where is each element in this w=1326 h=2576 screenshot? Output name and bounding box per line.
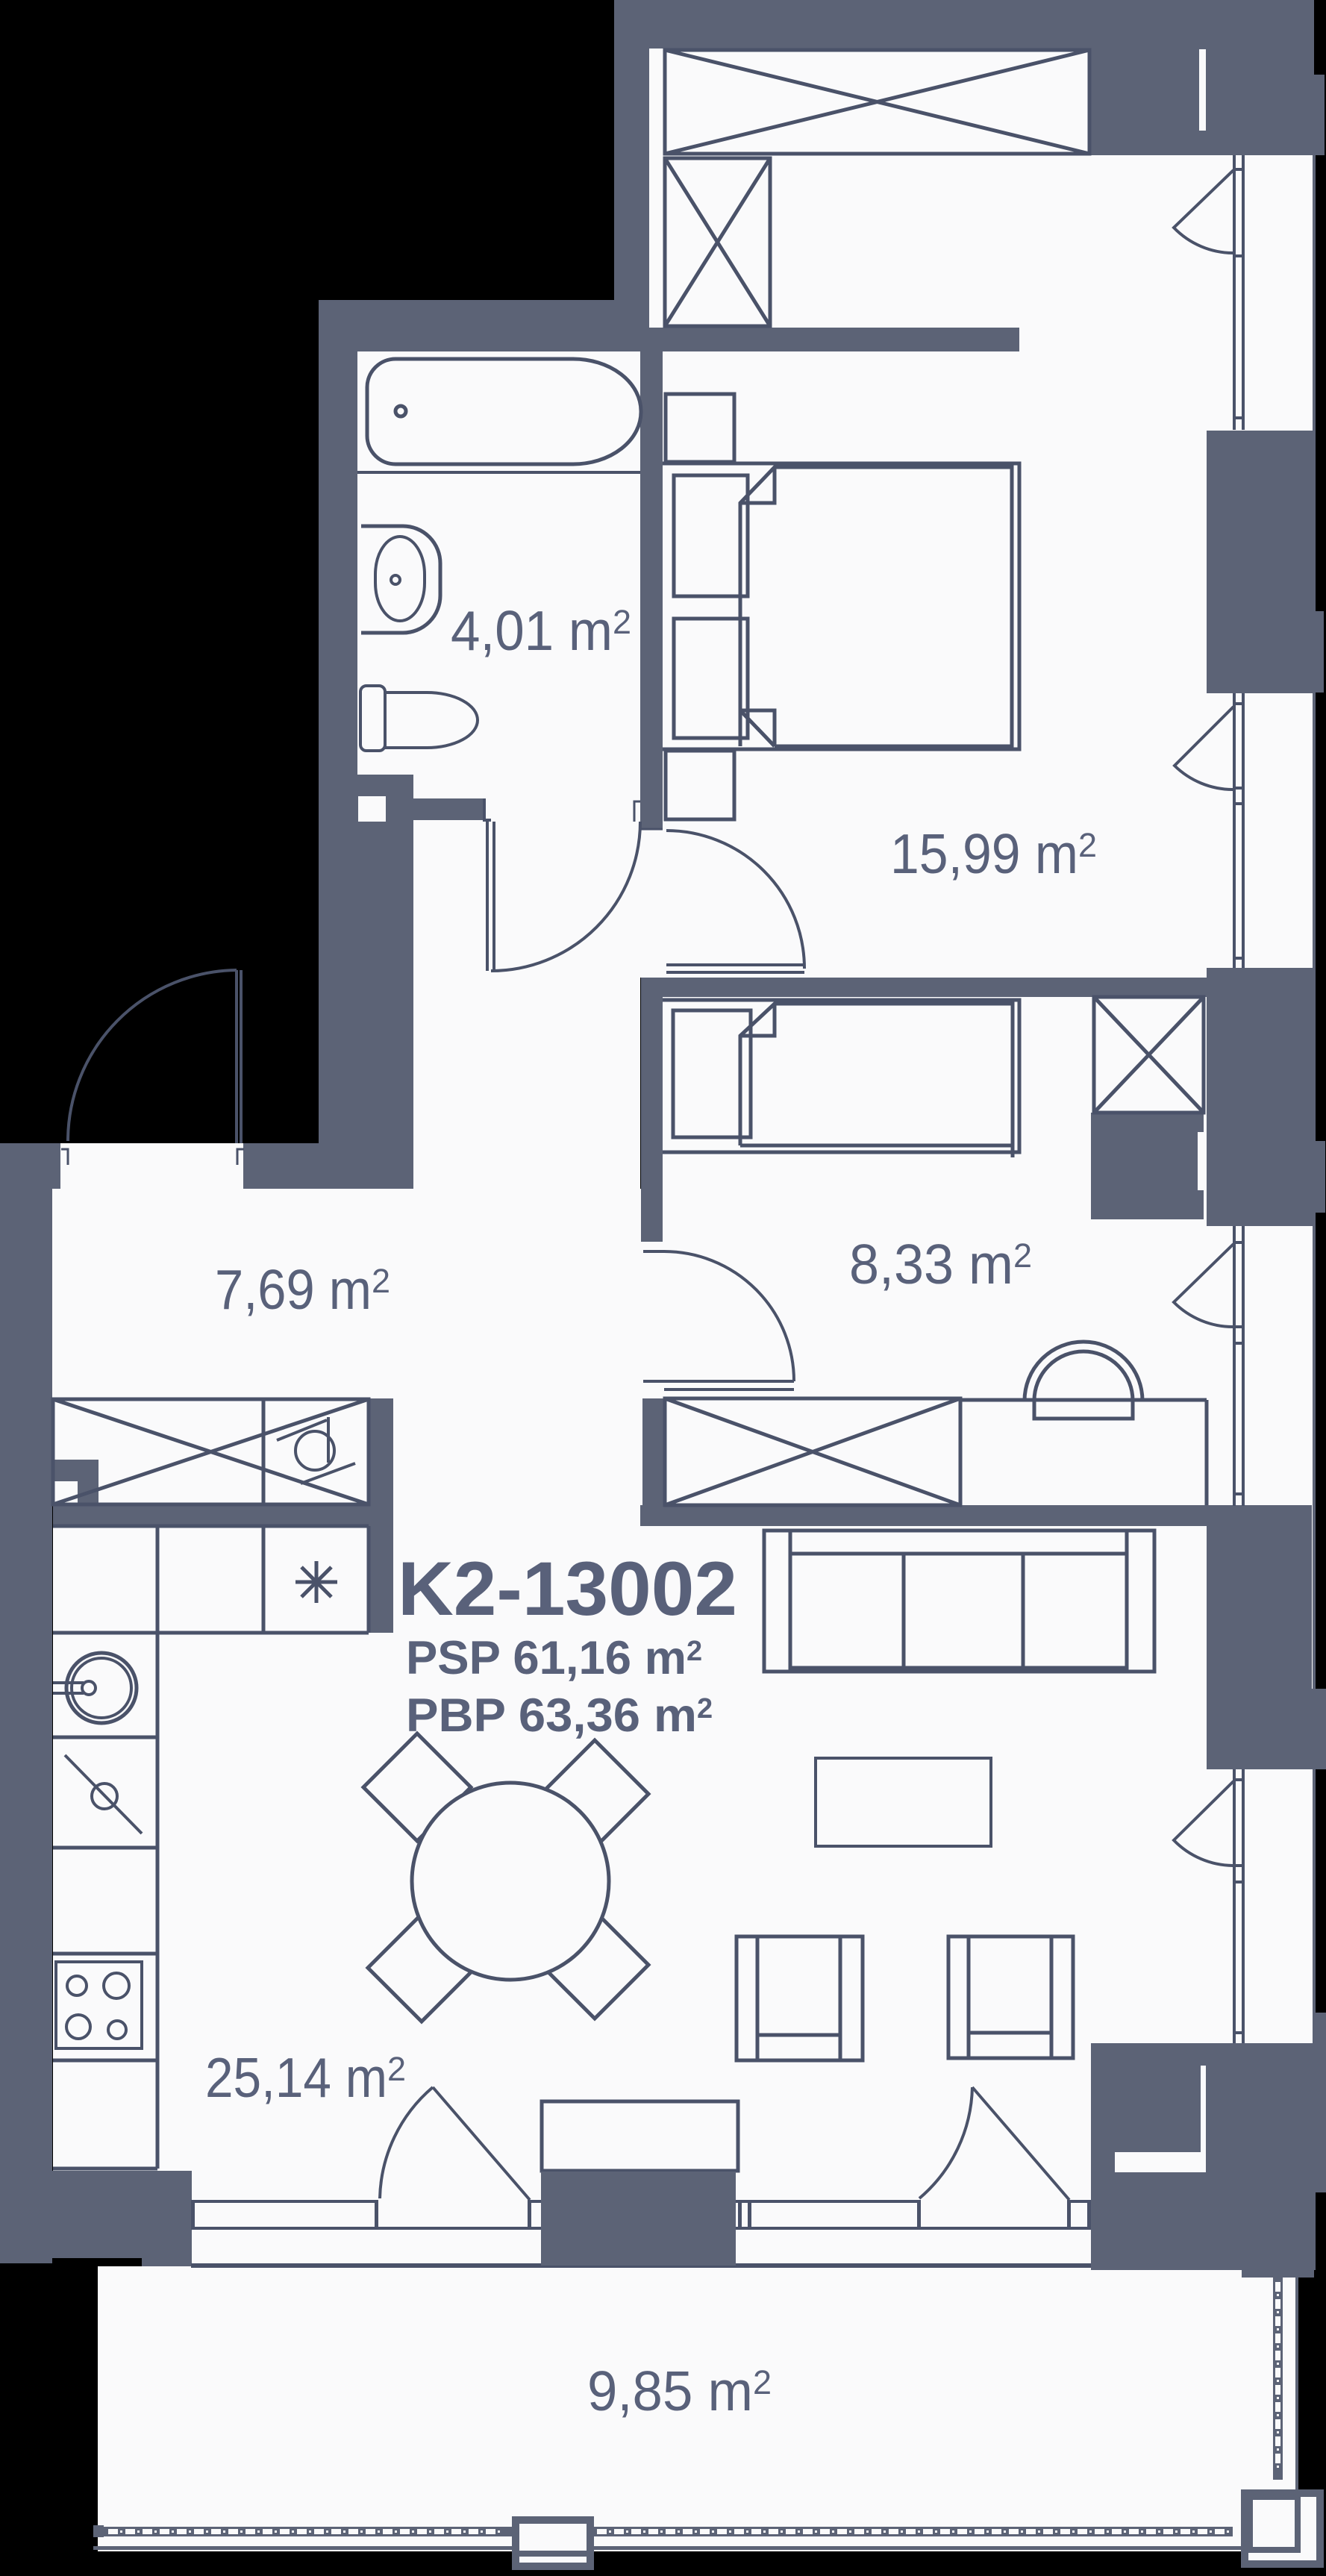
- svg-text:8,33 m2: 8,33 m2: [849, 1233, 1032, 1295]
- svg-text:PSP 61,16 m2: PSP 61,16 m2: [406, 1632, 702, 1684]
- svg-text:7,69 m2: 7,69 m2: [215, 1258, 390, 1321]
- svg-text:K2-13002: K2-13002: [398, 1546, 737, 1631]
- svg-text:15,99 m2: 15,99 m2: [890, 822, 1097, 885]
- svg-text:25,14 m2: 25,14 m2: [205, 2046, 406, 2109]
- svg-text:9,85 m2: 9,85 m2: [587, 2360, 772, 2422]
- svg-text:4,01 m2: 4,01 m2: [451, 599, 631, 662]
- svg-text:PBP 63,36 m2: PBP 63,36 m2: [406, 1689, 713, 1742]
